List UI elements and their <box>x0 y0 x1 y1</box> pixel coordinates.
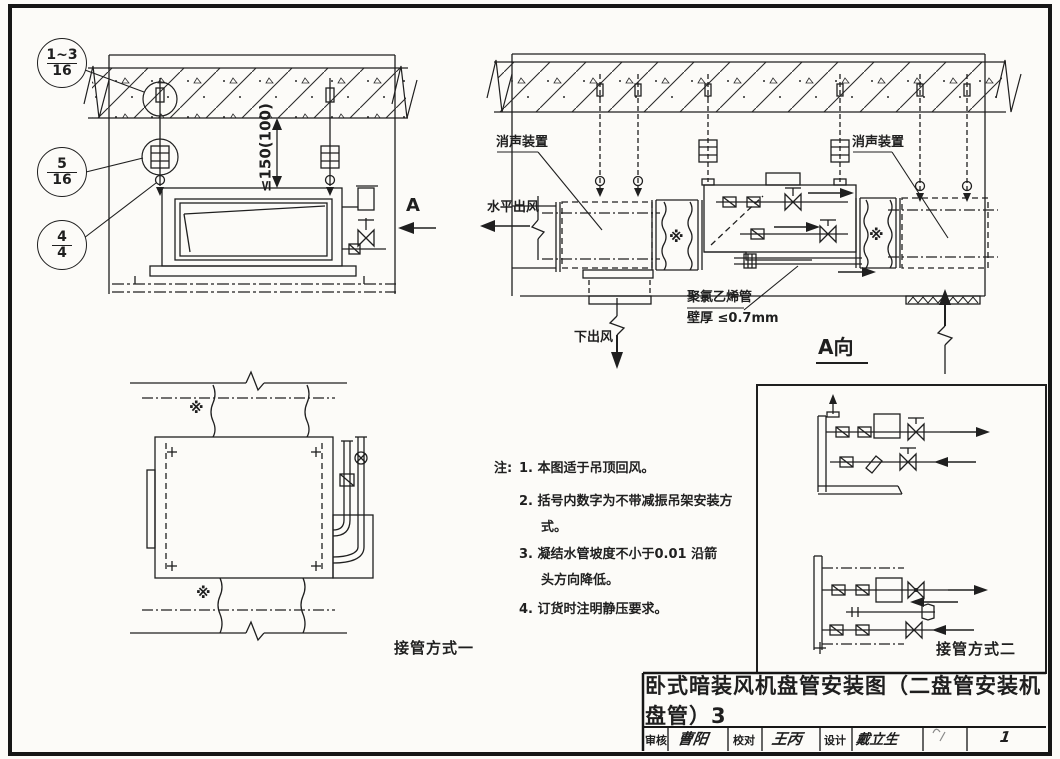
note-4-text: 订货时注明静压要求。 <box>538 602 668 617</box>
note-1-no: 1. <box>519 461 533 476</box>
clearance-dimension: ≤150(100) <box>257 78 274 218</box>
note-line-2: 2. 括号内数字为不带减振吊架安装方 <box>519 490 733 509</box>
drawing-sheet: 1~3 16 5 16 4 4 ≤150(100) A 消声装置 消声装置 水平… <box>0 0 1060 759</box>
designer-signature: 戴立生 <box>855 729 900 749</box>
horizontal-outlet-label: 水平出风 <box>487 201 539 216</box>
section-arrow-label: A <box>406 196 420 217</box>
note-3-cont: 头方向降低。 <box>541 573 619 588</box>
canvas-joint-symbol-right: ※ <box>869 227 884 244</box>
detail-bubble-2: 5 16 <box>37 147 87 197</box>
notes-label: 注: <box>494 457 512 476</box>
pvc-pipe-label-line1: 聚氯乙烯管 <box>687 291 752 306</box>
note-line-1: 1. 本图适于吊顶回风。 <box>519 457 655 476</box>
linework-layer <box>0 0 1060 759</box>
proofreader-signature: 王丙 <box>771 728 804 749</box>
bubble-3-sheet: 4 <box>52 245 72 261</box>
reviewer-signature: 曹阳 <box>677 728 710 749</box>
silencer-label-right: 消声装置 <box>852 136 904 151</box>
bubble-3-number: 4 <box>57 230 67 245</box>
note-3-text: 凝结水管坡度不小于0.01 沿箭 <box>538 547 718 562</box>
detail-views-lines <box>757 385 1046 673</box>
note-2-no: 2. <box>519 494 533 509</box>
note-4-no: 4. <box>519 602 533 617</box>
note-1-text: 本图适于吊顶回风。 <box>538 461 655 476</box>
canvas-joint-symbol-left: ※ <box>669 229 684 246</box>
note-2-text: 括号内数字为不带减振吊架安装方 <box>538 494 733 509</box>
plan-caption: 接管方式一 <box>394 640 474 657</box>
canvas-joint-symbol-top: ※ <box>189 400 204 417</box>
down-outlet-label: 下出风 <box>574 331 613 346</box>
bubble-2-number: 5 <box>57 157 67 172</box>
note-3-no: 3. <box>519 547 533 562</box>
note-line-3: 式。 <box>541 516 567 535</box>
designer-label: 设计 <box>824 732 846 748</box>
pvc-pipe-label-line2: 壁厚 ≤0.7mm <box>687 312 779 327</box>
note-line-5: 头方向降低。 <box>541 569 619 588</box>
canvas-joint-symbol-bottom: ※ <box>196 585 211 602</box>
detail-bubble-1: 1~3 16 <box>37 38 87 88</box>
detail-caption: 接管方式二 <box>936 641 1016 658</box>
bubble-2-sheet: 16 <box>47 172 76 188</box>
drawing-title: 卧式暗装风机盘管安装图（二盘管安装机盘管）3 <box>645 675 1044 725</box>
plan-view-lines <box>130 372 373 640</box>
a-view-title: A向 <box>818 336 853 359</box>
reviewer-label: 审核 <box>645 732 667 748</box>
silencer-label-left: 消声装置 <box>496 136 548 151</box>
note-line-6: 4. 订货时注明静压要求。 <box>519 598 668 617</box>
bubble-1-number: 1~3 <box>46 48 77 63</box>
detail-bubble-3: 4 4 <box>37 220 87 270</box>
proofreader-label: 校对 <box>733 732 755 748</box>
note-2-cont: 式。 <box>541 520 567 535</box>
note-line-4: 3. 凝结水管坡度不小于0.01 沿箭 <box>519 543 717 562</box>
bubble-1-sheet: 16 <box>47 63 76 79</box>
